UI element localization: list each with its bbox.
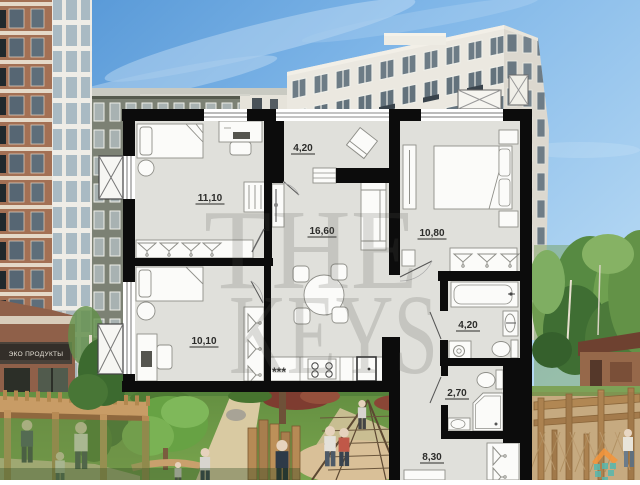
svg-text:4,20: 4,20 xyxy=(293,143,313,154)
svg-text:2,70: 2,70 xyxy=(447,388,467,399)
svg-text:4,20: 4,20 xyxy=(458,320,478,331)
svg-text:10,80: 10,80 xyxy=(419,228,444,239)
svg-text:ЭКО ПРОДУКТЫ: ЭКО ПРОДУКТЫ xyxy=(9,351,64,358)
svg-text:8,30: 8,30 xyxy=(422,452,442,463)
svg-text:KEYS: KEYS xyxy=(229,271,438,398)
svg-text:10,10: 10,10 xyxy=(191,336,216,347)
